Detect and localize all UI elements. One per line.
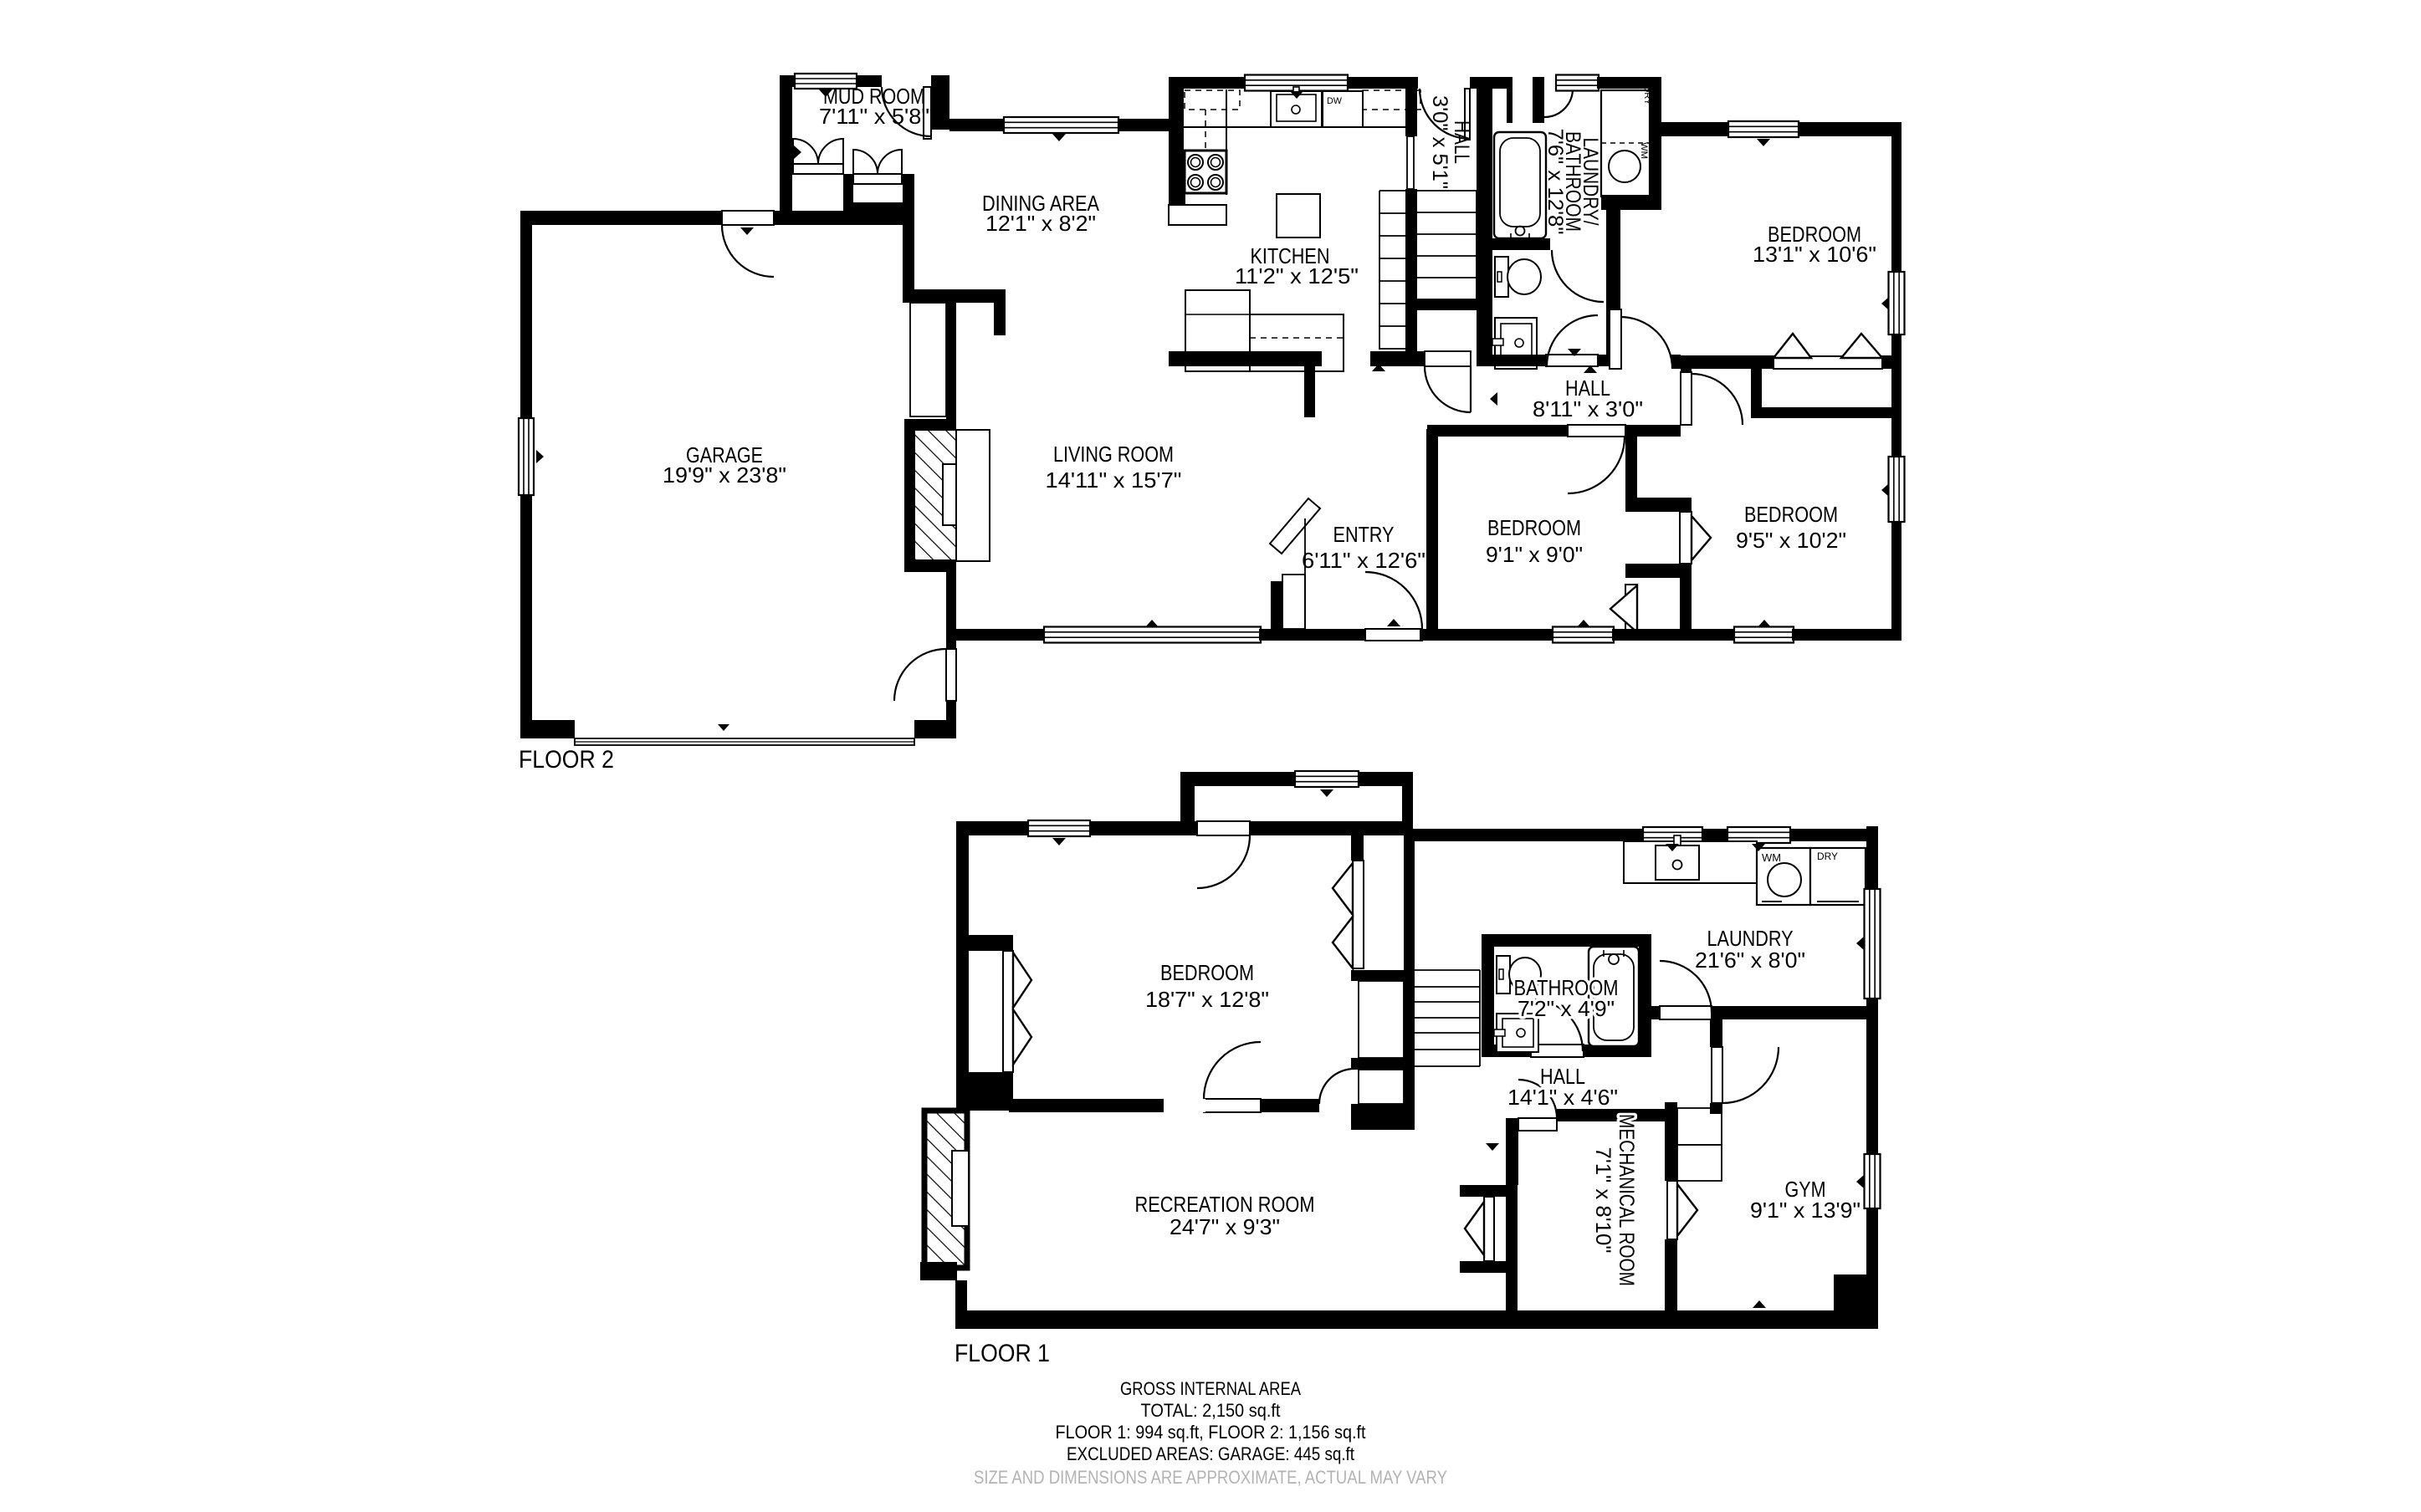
svg-text:EXCLUDED AREAS: GARAGE: 445 sq: EXCLUDED AREAS: GARAGE: 445 sq.ft bbox=[1067, 1443, 1354, 1464]
svg-text:BEDROOM: BEDROOM bbox=[1487, 515, 1581, 540]
svg-text:18'7" x 12'8": 18'7" x 12'8" bbox=[1145, 987, 1269, 1012]
svg-text:DRY: DRY bbox=[1817, 850, 1838, 862]
svg-text:SIZE AND DIMENSIONS ARE APPROX: SIZE AND DIMENSIONS ARE APPROXIMATE, ACT… bbox=[974, 1467, 1447, 1488]
svg-text:14'11" x 15'7": 14'11" x 15'7" bbox=[1046, 467, 1182, 493]
svg-text:19'9" x 23'8": 19'9" x 23'8" bbox=[663, 462, 786, 488]
svg-text:RECREATION ROOM: RECREATION ROOM bbox=[1135, 1192, 1315, 1217]
svg-text:6'11" x 12'6": 6'11" x 12'6" bbox=[1302, 548, 1425, 573]
svg-text:12'1" x 8'2": 12'1" x 8'2" bbox=[985, 211, 1096, 236]
svg-text:DW: DW bbox=[1327, 96, 1343, 106]
svg-text:7'1" x 8'10": 7'1" x 8'10" bbox=[1591, 1147, 1615, 1254]
svg-text:FLOOR 1: FLOOR 1 bbox=[955, 1340, 1050, 1367]
svg-text:WM: WM bbox=[1762, 851, 1781, 864]
svg-text:3'0" x 5'1": 3'0" x 5'1" bbox=[1428, 95, 1451, 189]
svg-text:9'5" x 10'2": 9'5" x 10'2" bbox=[1736, 528, 1846, 553]
svg-text:13'1" x 10'6": 13'1" x 10'6" bbox=[1753, 242, 1876, 267]
svg-text:21'6" x 8'0": 21'6" x 8'0" bbox=[1695, 948, 1805, 973]
svg-text:TOTAL: 2,150 sq.ft: TOTAL: 2,150 sq.ft bbox=[1141, 1400, 1281, 1421]
svg-text:HALL: HALL bbox=[1450, 120, 1473, 164]
svg-text:FLOOR 2: FLOOR 2 bbox=[519, 746, 614, 774]
svg-text:7'6" x 12'8": 7'6" x 12'8" bbox=[1543, 129, 1567, 235]
svg-text:7'2" x 4'9": 7'2" x 4'9" bbox=[1518, 996, 1615, 1021]
svg-text:9'1" x 9'0": 9'1" x 9'0" bbox=[1486, 542, 1583, 567]
svg-text:ENTRY: ENTRY bbox=[1333, 522, 1395, 547]
svg-text:BEDROOM: BEDROOM bbox=[1744, 502, 1838, 527]
svg-text:WM: WM bbox=[1639, 142, 1649, 159]
svg-text:8'11" x 3'0": 8'11" x 3'0" bbox=[1533, 396, 1643, 421]
svg-text:24'7" x 9'3": 24'7" x 9'3" bbox=[1170, 1214, 1280, 1239]
svg-text:FLOOR 1: 994 sq.ft, FLOOR 2: 1: FLOOR 1: 994 sq.ft, FLOOR 2: 1,156 sq.ft bbox=[1056, 1422, 1366, 1443]
svg-text:14'1" x 4'6": 14'1" x 4'6" bbox=[1507, 1085, 1618, 1110]
svg-text:7'11" x 5'8": 7'11" x 5'8" bbox=[819, 104, 929, 129]
svg-text:MECHANICAL ROOM: MECHANICAL ROOM bbox=[1615, 1114, 1638, 1286]
svg-text:LIVING ROOM: LIVING ROOM bbox=[1053, 442, 1174, 467]
svg-text:BEDROOM: BEDROOM bbox=[1160, 960, 1254, 985]
svg-text:GROSS INTERNAL AREA: GROSS INTERNAL AREA bbox=[1120, 1378, 1301, 1399]
svg-text:9'1" x 13'9": 9'1" x 13'9" bbox=[1750, 1198, 1861, 1223]
svg-text:11'2" x 12'5": 11'2" x 12'5" bbox=[1235, 263, 1359, 289]
